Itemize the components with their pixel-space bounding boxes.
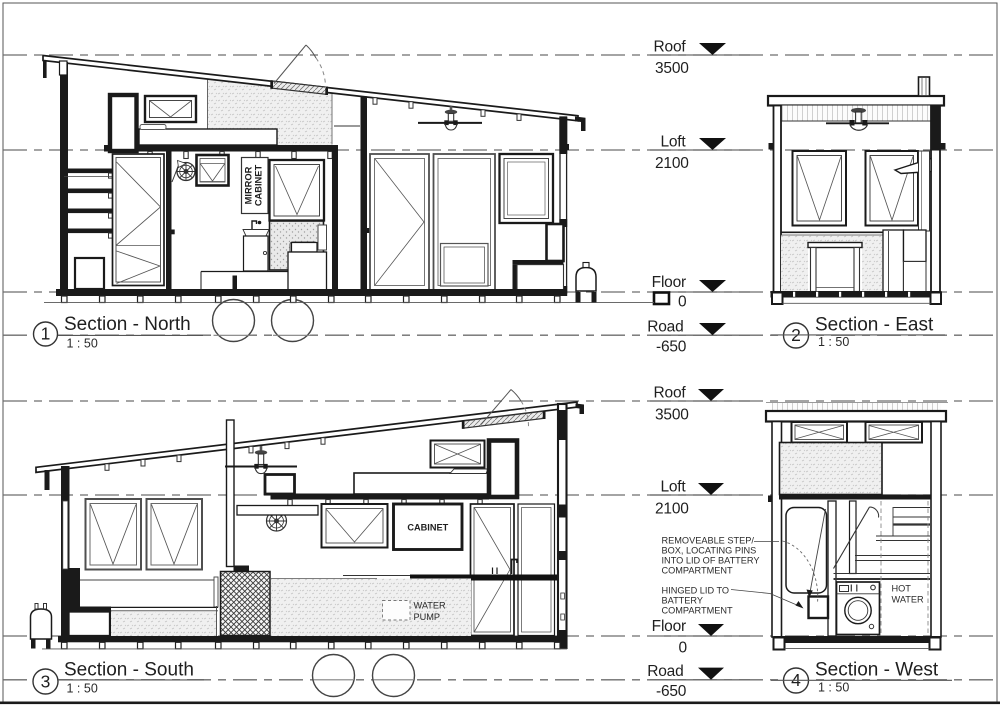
svg-text:-650: -650 xyxy=(656,339,687,356)
svg-text:1 : 50: 1 : 50 xyxy=(818,681,849,695)
svg-text:CABINET: CABINET xyxy=(254,165,264,207)
svg-text:-650: -650 xyxy=(656,683,687,700)
svg-text:Loft: Loft xyxy=(660,479,686,496)
svg-text:Section - South: Section - South xyxy=(64,660,194,681)
svg-text:HINGED LID TO: HINGED LID TO xyxy=(662,586,730,596)
svg-text:REMOVEABLE STEP/: REMOVEABLE STEP/ xyxy=(662,536,755,546)
svg-text:PUMP: PUMP xyxy=(414,612,441,622)
svg-text:Roof: Roof xyxy=(654,385,687,402)
svg-text:1: 1 xyxy=(41,324,51,344)
svg-text:CABINET: CABINET xyxy=(407,523,448,533)
svg-text:INTO LID OF BATTERY: INTO LID OF BATTERY xyxy=(662,556,760,566)
svg-text:2100: 2100 xyxy=(655,155,689,172)
svg-text:COMPARTMENT: COMPARTMENT xyxy=(662,606,734,616)
svg-text:Floor: Floor xyxy=(652,274,686,291)
svg-text:1 : 50: 1 : 50 xyxy=(67,682,98,696)
svg-text:COMPARTMENT: COMPARTMENT xyxy=(662,566,734,576)
svg-text:HOT: HOT xyxy=(892,584,912,594)
svg-text:Loft: Loft xyxy=(660,134,686,151)
svg-text:1 : 50: 1 : 50 xyxy=(818,335,849,349)
svg-text:Road: Road xyxy=(647,663,683,680)
svg-text:Section - West: Section - West xyxy=(815,660,939,681)
svg-text:3: 3 xyxy=(41,672,51,692)
svg-text:Section - East: Section - East xyxy=(815,315,934,336)
svg-text:BATTERY: BATTERY xyxy=(662,596,704,606)
svg-text:Section - North: Section - North xyxy=(64,314,191,335)
svg-text:MIRROR: MIRROR xyxy=(244,166,254,204)
svg-text:0: 0 xyxy=(679,640,688,657)
svg-text:0: 0 xyxy=(678,294,687,311)
svg-text:WATER: WATER xyxy=(414,601,447,611)
svg-text:3500: 3500 xyxy=(655,60,689,77)
svg-text:1 : 50: 1 : 50 xyxy=(67,337,98,351)
svg-text:BOX, LOCATING PINS: BOX, LOCATING PINS xyxy=(662,546,757,556)
svg-text:WATER: WATER xyxy=(892,595,925,605)
svg-text:3500: 3500 xyxy=(655,407,689,424)
svg-text:2100: 2100 xyxy=(655,501,689,518)
svg-text:Road: Road xyxy=(647,319,683,336)
svg-text:Floor: Floor xyxy=(652,618,686,635)
svg-text:Roof: Roof xyxy=(654,39,687,56)
